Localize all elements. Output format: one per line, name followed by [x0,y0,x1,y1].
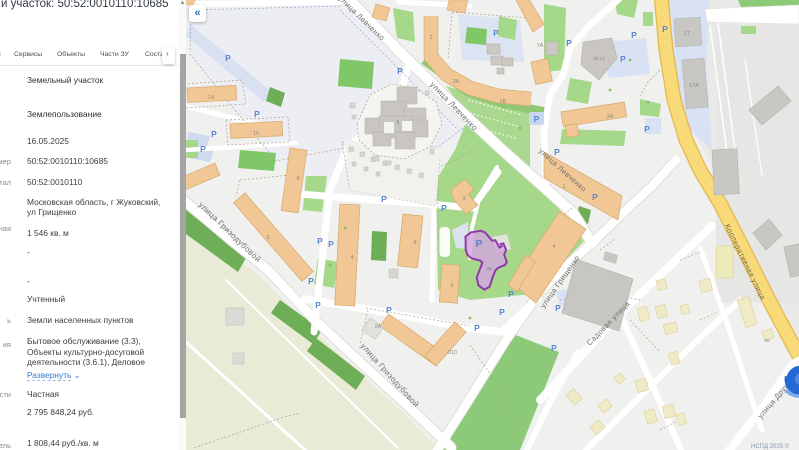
svg-text:P: P [308,276,314,286]
svg-text:P: P [254,109,260,119]
svg-text:P: P [631,30,637,40]
svg-text:4: 4 [552,244,555,250]
svg-text:2А: 2А [453,79,460,85]
svg-text:14: 14 [208,95,214,101]
svg-text:НСПД 2025 ©: НСПД 2025 © [751,443,790,450]
svg-text:2/10: 2/10 [447,350,457,356]
svg-text:P: P [554,147,560,157]
svg-text:P: P [566,38,572,48]
svg-text:P: P [474,323,480,333]
svg-text:P: P [441,203,447,213]
svg-text:17: 17 [684,31,690,37]
svg-text:3: 3 [462,196,465,202]
svg-text:10: 10 [253,131,259,137]
svg-text:2Б: 2Б [500,99,507,105]
svg-text:6: 6 [266,235,269,241]
svg-text:P: P [620,54,626,64]
svg-text:P: P [555,303,561,313]
svg-text:2А: 2А [375,324,382,330]
svg-text:P: P [592,192,598,202]
svg-text:8: 8 [296,176,299,182]
svg-text:P: P [534,114,540,124]
svg-text:P: P [499,307,505,317]
svg-text:3б с1: 3б с1 [593,56,605,62]
svg-text:1: 1 [562,184,565,190]
svg-text:P: P [508,289,514,299]
svg-text:P: P [328,239,334,249]
svg-text:P: P [493,28,499,38]
svg-text:P: P [397,66,403,76]
svg-text:P: P [475,238,482,250]
svg-text:P: P [386,305,392,315]
svg-text:8: 8 [413,240,416,246]
svg-text:P: P [662,24,668,34]
svg-text:5: 5 [396,120,399,126]
svg-text:7А: 7А [537,43,544,49]
svg-text:4а: 4а [486,266,492,271]
svg-text:P: P [211,129,217,139]
svg-text:3А: 3А [607,114,614,120]
svg-text:6: 6 [450,283,453,289]
svg-text:2: 2 [429,35,432,41]
svg-text:P: P [551,343,557,353]
svg-text:P: P [225,53,231,63]
svg-text:17А: 17А [689,83,699,89]
svg-text:4: 4 [350,255,353,261]
svg-text:P: P [200,144,206,154]
svg-text:P: P [315,300,321,310]
svg-text:89: 89 [764,338,770,343]
svg-text:P: P [381,194,387,204]
svg-text:P: P [644,124,650,134]
svg-text:P: P [317,236,323,246]
